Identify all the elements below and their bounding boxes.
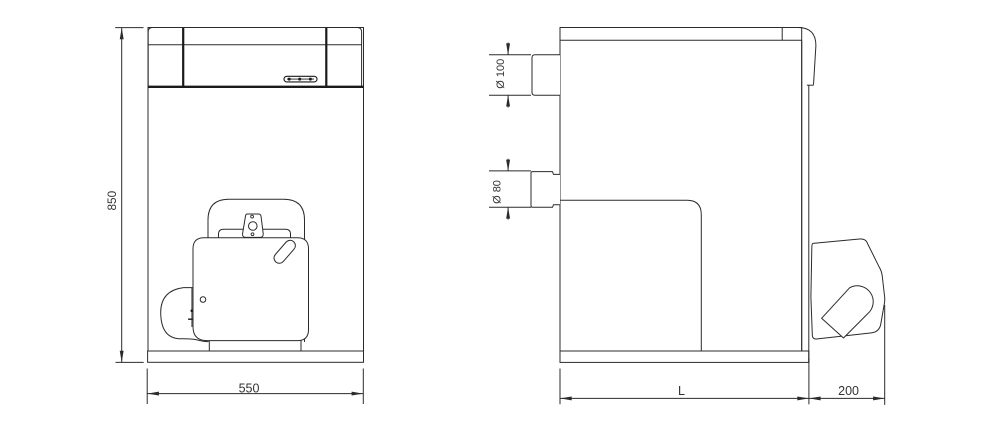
svg-text:550: 550 [239, 382, 260, 396]
svg-text:L: L [678, 384, 685, 398]
svg-text:Ø 100: Ø 100 [495, 59, 507, 89]
svg-text:Ø 80: Ø 80 [491, 180, 503, 204]
svg-text:850: 850 [105, 190, 119, 210]
svg-text:200: 200 [838, 384, 859, 398]
